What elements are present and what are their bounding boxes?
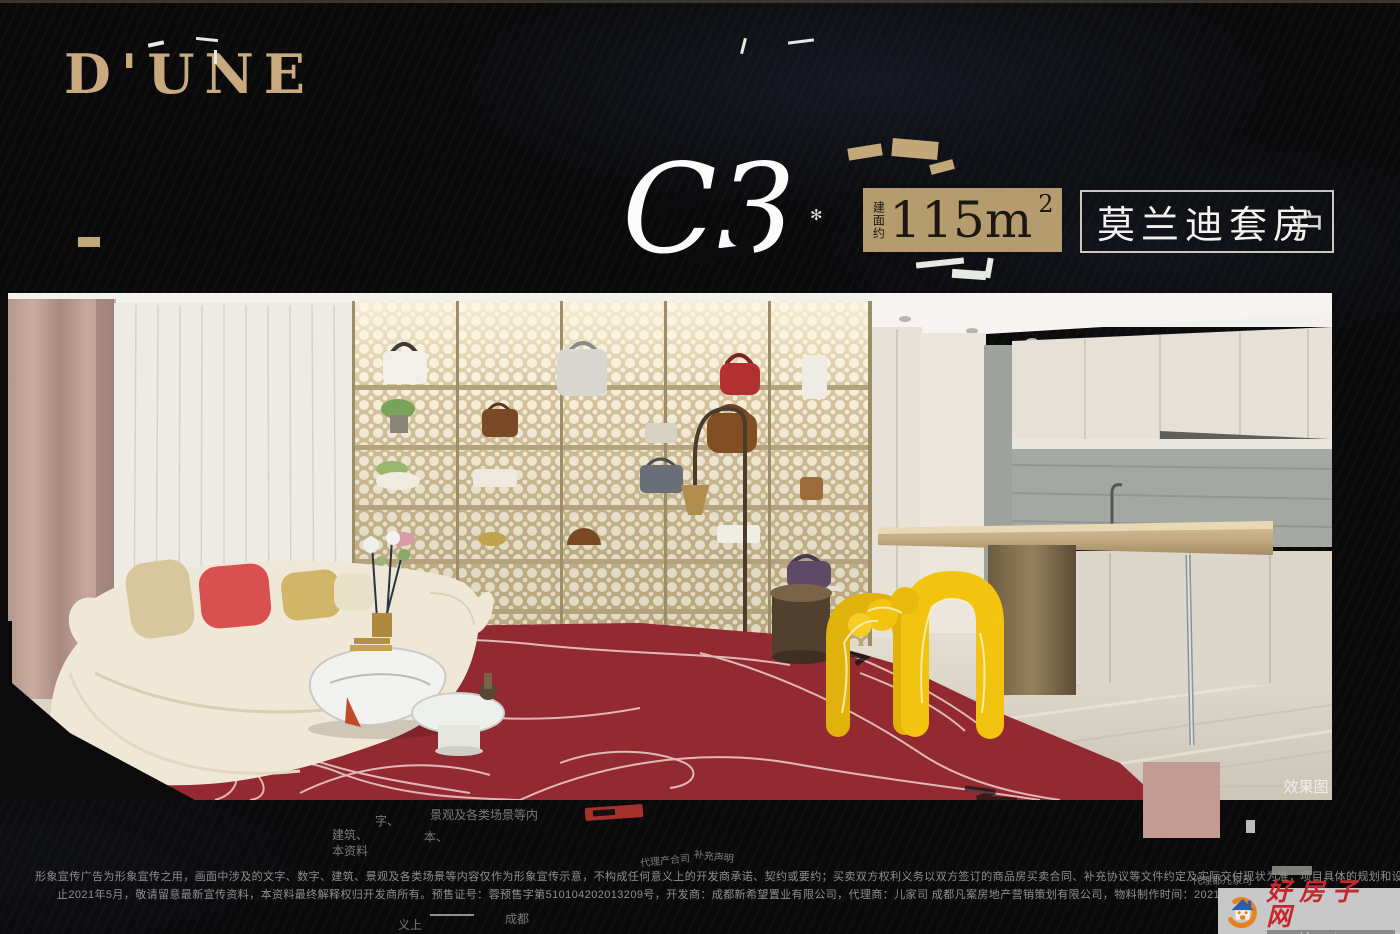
- ghost-text-fragment: 成都: [505, 910, 529, 927]
- glitch-mark: [929, 159, 955, 175]
- poster: D'UNE C3 ✻ 建面约 115m 2 莫兰迪套房 户: [0, 0, 1400, 934]
- ghost-text-fragment: 代理产合司: [639, 849, 690, 869]
- house-logo-icon: [1222, 890, 1263, 932]
- disclaimer-line-2: 止2021年5月，敬请留意最新宣传资料，本资料最终解释权归开发商所有。预售证号：…: [57, 886, 1400, 902]
- disclaimer-line-1: 形象宣传广告为形象宣传之用，画面中涉及的文字、数字、建筑、景观及各类场景等内容仅…: [35, 868, 1400, 884]
- ghost-text-fragment: 建筑、: [332, 826, 368, 843]
- pink-corruption-square: [1143, 762, 1220, 838]
- red-corruption-smudge: [585, 804, 644, 821]
- area-badge-value: 115m: [889, 195, 1032, 245]
- glitch-mark: [984, 258, 993, 279]
- interior-render-photo: 效果图: [0, 293, 1332, 800]
- area-badge: 建面约 115m 2: [863, 188, 1062, 252]
- glitch-mark: [916, 258, 964, 269]
- area-badge-sup: 2: [1038, 190, 1053, 218]
- area-badge-prefix: 建面约: [872, 201, 884, 240]
- glitch-mark: [952, 269, 987, 280]
- glitch-mark: [1246, 820, 1255, 833]
- brand-logo: D'UNE: [64, 42, 315, 106]
- site-watermark: 好房子网 www.hfangziwang.com: [1218, 888, 1400, 934]
- glitch-mark: [891, 138, 938, 160]
- watermark-url: www.hfangziwang.com: [1267, 930, 1395, 934]
- watermark-site-name: 好房子网: [1266, 879, 1396, 929]
- glitch-mark: [214, 50, 217, 64]
- suite-glitch-char: 户: [1292, 200, 1322, 240]
- glitch-mark: [788, 38, 814, 44]
- ghost-text-fragment: 字、: [375, 812, 399, 829]
- redaction-bar: [1272, 866, 1312, 875]
- render-caption: 效果图: [1283, 779, 1328, 796]
- top-border-line: [0, 0, 1400, 3]
- ghost-text-fragment: 义上: [398, 916, 422, 933]
- ghost-text-fragment: 本、: [424, 828, 448, 845]
- asterisk-ornament-icon: ✻: [810, 206, 823, 224]
- glitch-mark: [78, 237, 100, 247]
- ghost-text-fragment: 本资料: [332, 842, 368, 859]
- ghost-text-fragment: 补充声明: [693, 846, 735, 866]
- glitch-mark: [740, 38, 747, 54]
- glitch-mark: [430, 914, 474, 916]
- ghost-text-fragment: 景观及各类场景等内: [430, 806, 538, 823]
- glitch-mark: [847, 143, 882, 160]
